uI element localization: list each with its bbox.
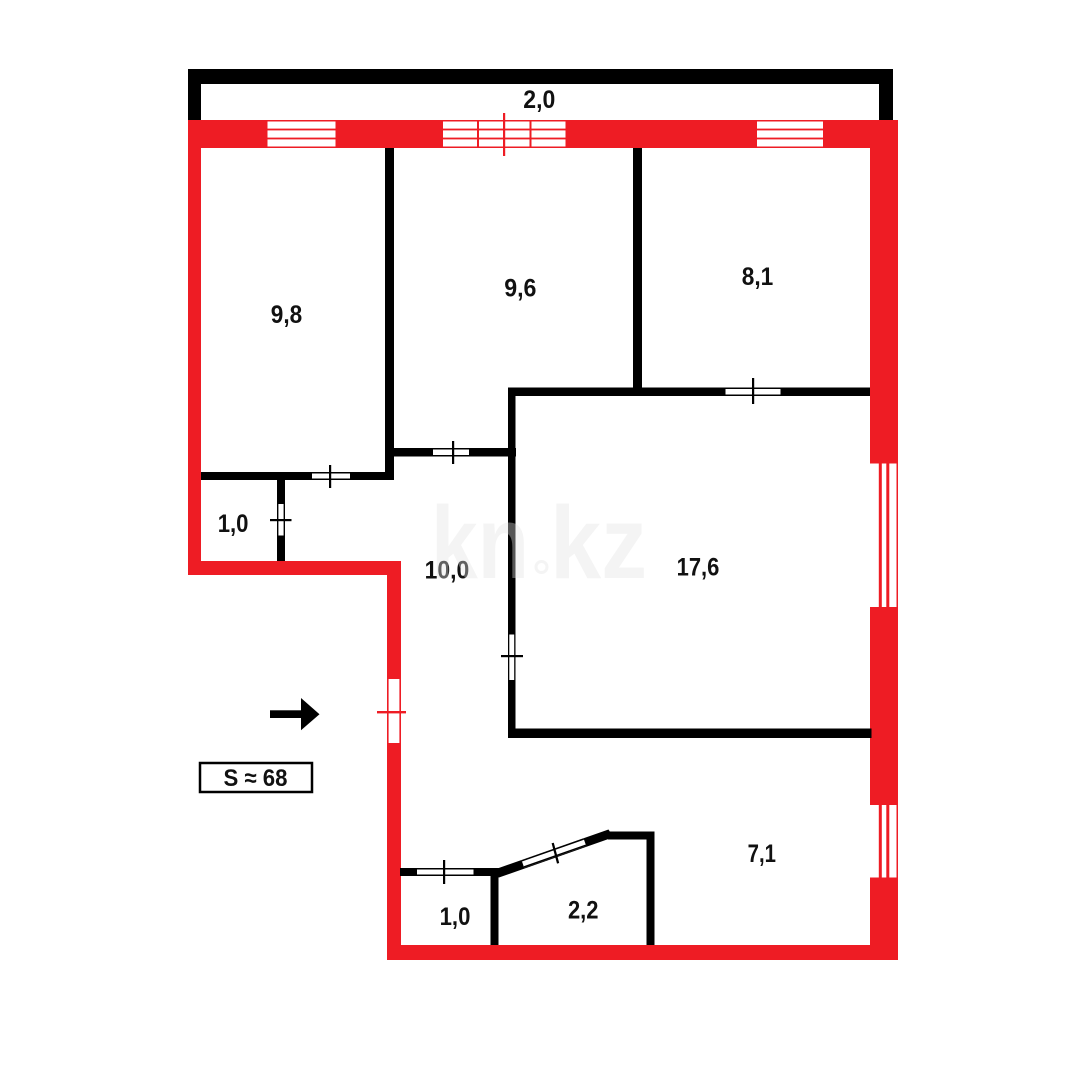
svg-text:kn: kn: [431, 485, 529, 600]
svg-text:1,0: 1,0: [440, 903, 471, 931]
svg-text:8,1: 8,1: [742, 263, 774, 291]
svg-text:S ≈ 68: S ≈ 68: [224, 765, 288, 792]
svg-text:2,2: 2,2: [568, 897, 599, 925]
svg-text:9,6: 9,6: [504, 274, 536, 302]
svg-text:2,0: 2,0: [523, 86, 555, 114]
svg-text:1,0: 1,0: [218, 510, 249, 538]
svg-text:kz: kz: [550, 485, 647, 600]
svg-text:9,8: 9,8: [271, 301, 302, 329]
svg-text:7,1: 7,1: [748, 840, 776, 868]
svg-text:17,6: 17,6: [677, 553, 720, 581]
